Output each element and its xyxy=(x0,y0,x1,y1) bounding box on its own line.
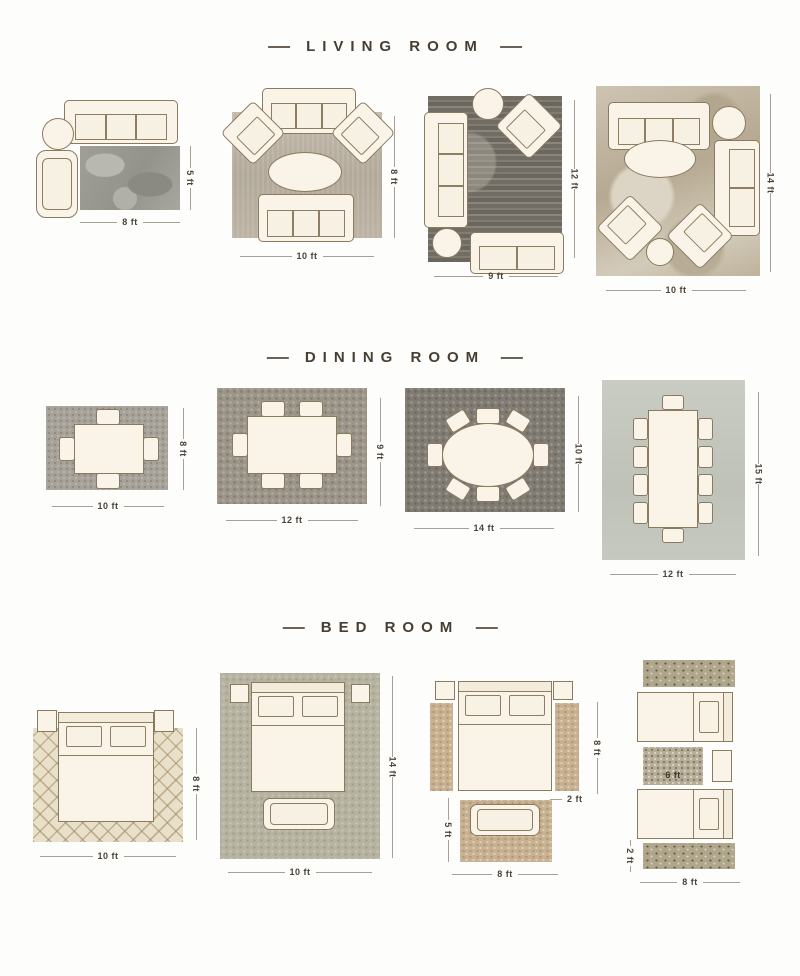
width-label: 10 ft xyxy=(98,851,119,861)
width-dimension: 10 ft xyxy=(228,866,372,878)
round-side-table xyxy=(712,106,746,140)
dining-table xyxy=(74,424,144,474)
height-dimension: 12 ft xyxy=(568,100,580,258)
oval-coffee-table xyxy=(268,152,342,192)
section-title-living-room: LIVING ROOM xyxy=(268,38,522,55)
dining-table xyxy=(247,416,337,474)
dining-chair xyxy=(336,433,352,457)
height-dimension: 9 ft xyxy=(374,398,386,506)
sofa-vertical xyxy=(424,112,468,228)
section-title-dining-room: DINING ROOM xyxy=(267,349,523,366)
sofa-vertical xyxy=(714,140,760,236)
width-dimension: 8 ft xyxy=(452,868,558,880)
bed xyxy=(458,681,552,791)
dining-chair xyxy=(232,433,248,457)
dining-chair xyxy=(533,443,549,467)
bench xyxy=(470,804,540,836)
width-label: 12 ft xyxy=(282,515,303,525)
height-label: 10 ft xyxy=(573,443,583,464)
bedside-runner-rug xyxy=(555,703,579,791)
width-dimension: 10 ft xyxy=(40,850,176,862)
sofa xyxy=(258,194,354,242)
width-dimension: 9 ft xyxy=(434,270,558,282)
height-label: 15 ft xyxy=(753,463,763,484)
width-label: 9 ft xyxy=(488,271,504,281)
height-label: 14 ft xyxy=(387,756,397,777)
dining-chair xyxy=(698,474,713,496)
runner-height-label: 2 ft xyxy=(625,848,635,864)
nightstand xyxy=(712,750,732,782)
dining-chair xyxy=(96,409,120,425)
section-title-text: LIVING ROOM xyxy=(306,38,484,55)
runner-rug xyxy=(643,843,735,869)
runner-width-label: 2 ft xyxy=(567,794,583,804)
dining-table xyxy=(648,410,698,528)
width-label: 10 ft xyxy=(290,867,311,877)
nightstand xyxy=(435,681,455,700)
dining-chair xyxy=(476,486,500,502)
width-dimension: 12 ft xyxy=(226,514,358,526)
width-label: 12 ft xyxy=(663,569,684,579)
height-dimension: 14 ft xyxy=(386,676,398,858)
width-label: 8 ft xyxy=(497,869,513,879)
section-title-bed-room: BED ROOM xyxy=(283,619,498,636)
height-dimension: 10 ft xyxy=(572,396,584,512)
nightstand xyxy=(154,710,174,732)
height-label: 9 ft xyxy=(375,444,385,460)
dining-chair xyxy=(299,401,323,417)
dining-chair xyxy=(96,473,120,489)
width-dimension: 8 ft xyxy=(640,876,740,888)
height-dimension: 8 ft xyxy=(177,408,189,490)
bed xyxy=(58,712,154,822)
dining-chair xyxy=(633,446,648,468)
width-label: 8 ft xyxy=(682,877,698,887)
dining-chair xyxy=(427,443,443,467)
section-title-text: BED ROOM xyxy=(321,619,460,636)
foot-rug-height-dimension: 5 ft xyxy=(442,798,454,862)
title-dash-icon xyxy=(268,46,290,48)
width-label: 8 ft xyxy=(122,217,138,227)
bedside-runner-rug xyxy=(430,703,453,791)
nightstand xyxy=(553,681,573,700)
dining-chair xyxy=(59,437,75,461)
height-label: 8 ft xyxy=(191,776,201,792)
title-dash-icon xyxy=(501,357,523,359)
dining-chair xyxy=(633,418,648,440)
dining-chair xyxy=(633,474,648,496)
oval-coffee-table xyxy=(624,140,696,178)
runner-rug xyxy=(643,660,735,687)
height-label: 8 ft xyxy=(178,441,188,457)
width-label: 10 ft xyxy=(98,501,119,511)
title-dash-icon xyxy=(500,46,522,48)
width-dimension: 8 ft xyxy=(80,216,180,228)
dining-chair xyxy=(261,401,285,417)
nightstand xyxy=(351,684,370,703)
dining-chair xyxy=(261,473,285,489)
width-dimension: 10 ft xyxy=(240,250,374,262)
rug-size-guide-infographic: LIVING ROOM 8 ft 5 ft 10 ft 8 ft 9 ft 12… xyxy=(0,0,800,976)
round-side-table xyxy=(42,118,74,150)
bench xyxy=(263,798,335,830)
dining-chair xyxy=(662,528,684,543)
width-label: 14 ft xyxy=(474,523,495,533)
height-dimension: 8 ft xyxy=(190,728,202,840)
foot-rug-height-label: 5 ft xyxy=(443,822,453,838)
title-dash-icon xyxy=(475,627,497,629)
title-dash-icon xyxy=(267,357,289,359)
height-label: 5 ft xyxy=(185,170,195,186)
round-side-table xyxy=(432,228,462,258)
runner-width-dimension: 2 ft xyxy=(550,793,592,805)
height-dimension: 15 ft xyxy=(752,392,764,556)
width-label: 10 ft xyxy=(666,285,687,295)
chaise-chair xyxy=(36,150,78,218)
width-dimension: 14 ft xyxy=(414,522,554,534)
runner-height-dimension: 2 ft xyxy=(624,840,636,872)
bed xyxy=(251,682,345,792)
living-rug-1 xyxy=(80,146,180,210)
dining-chair xyxy=(299,473,323,489)
width-dimension: 12 ft xyxy=(610,568,736,580)
height-label: 8 ft xyxy=(389,169,399,185)
height-dimension: 5 ft xyxy=(184,146,196,210)
height-label: 12 ft xyxy=(569,168,579,189)
between-beds-rug: 6 ft xyxy=(643,747,703,785)
height-dimension: 8 ft xyxy=(591,702,603,794)
dining-chair xyxy=(698,502,713,524)
nightstand xyxy=(37,710,57,732)
dining-chair xyxy=(476,408,500,424)
dining-chair xyxy=(662,395,684,410)
width-label: 10 ft xyxy=(297,251,318,261)
section-title-text: DINING ROOM xyxy=(305,349,485,366)
width-dimension: 10 ft xyxy=(52,500,164,512)
rug-width-label: 6 ft xyxy=(643,770,703,780)
bed-sideways xyxy=(637,789,733,839)
dining-chair xyxy=(698,446,713,468)
sofa xyxy=(64,100,178,144)
width-dimension: 10 ft xyxy=(606,284,746,296)
height-label: 8 ft xyxy=(592,740,602,756)
dining-chair xyxy=(633,502,648,524)
height-dimension: 8 ft xyxy=(388,116,400,238)
height-label: 14 ft xyxy=(765,172,775,193)
height-dimension: 14 ft xyxy=(764,94,776,272)
bed-sideways xyxy=(637,692,733,742)
loveseat xyxy=(470,232,564,274)
nightstand xyxy=(230,684,249,703)
round-side-table xyxy=(646,238,674,266)
round-side-table xyxy=(472,88,504,120)
dining-chair xyxy=(143,437,159,461)
title-dash-icon xyxy=(283,627,305,629)
dining-chair xyxy=(698,418,713,440)
